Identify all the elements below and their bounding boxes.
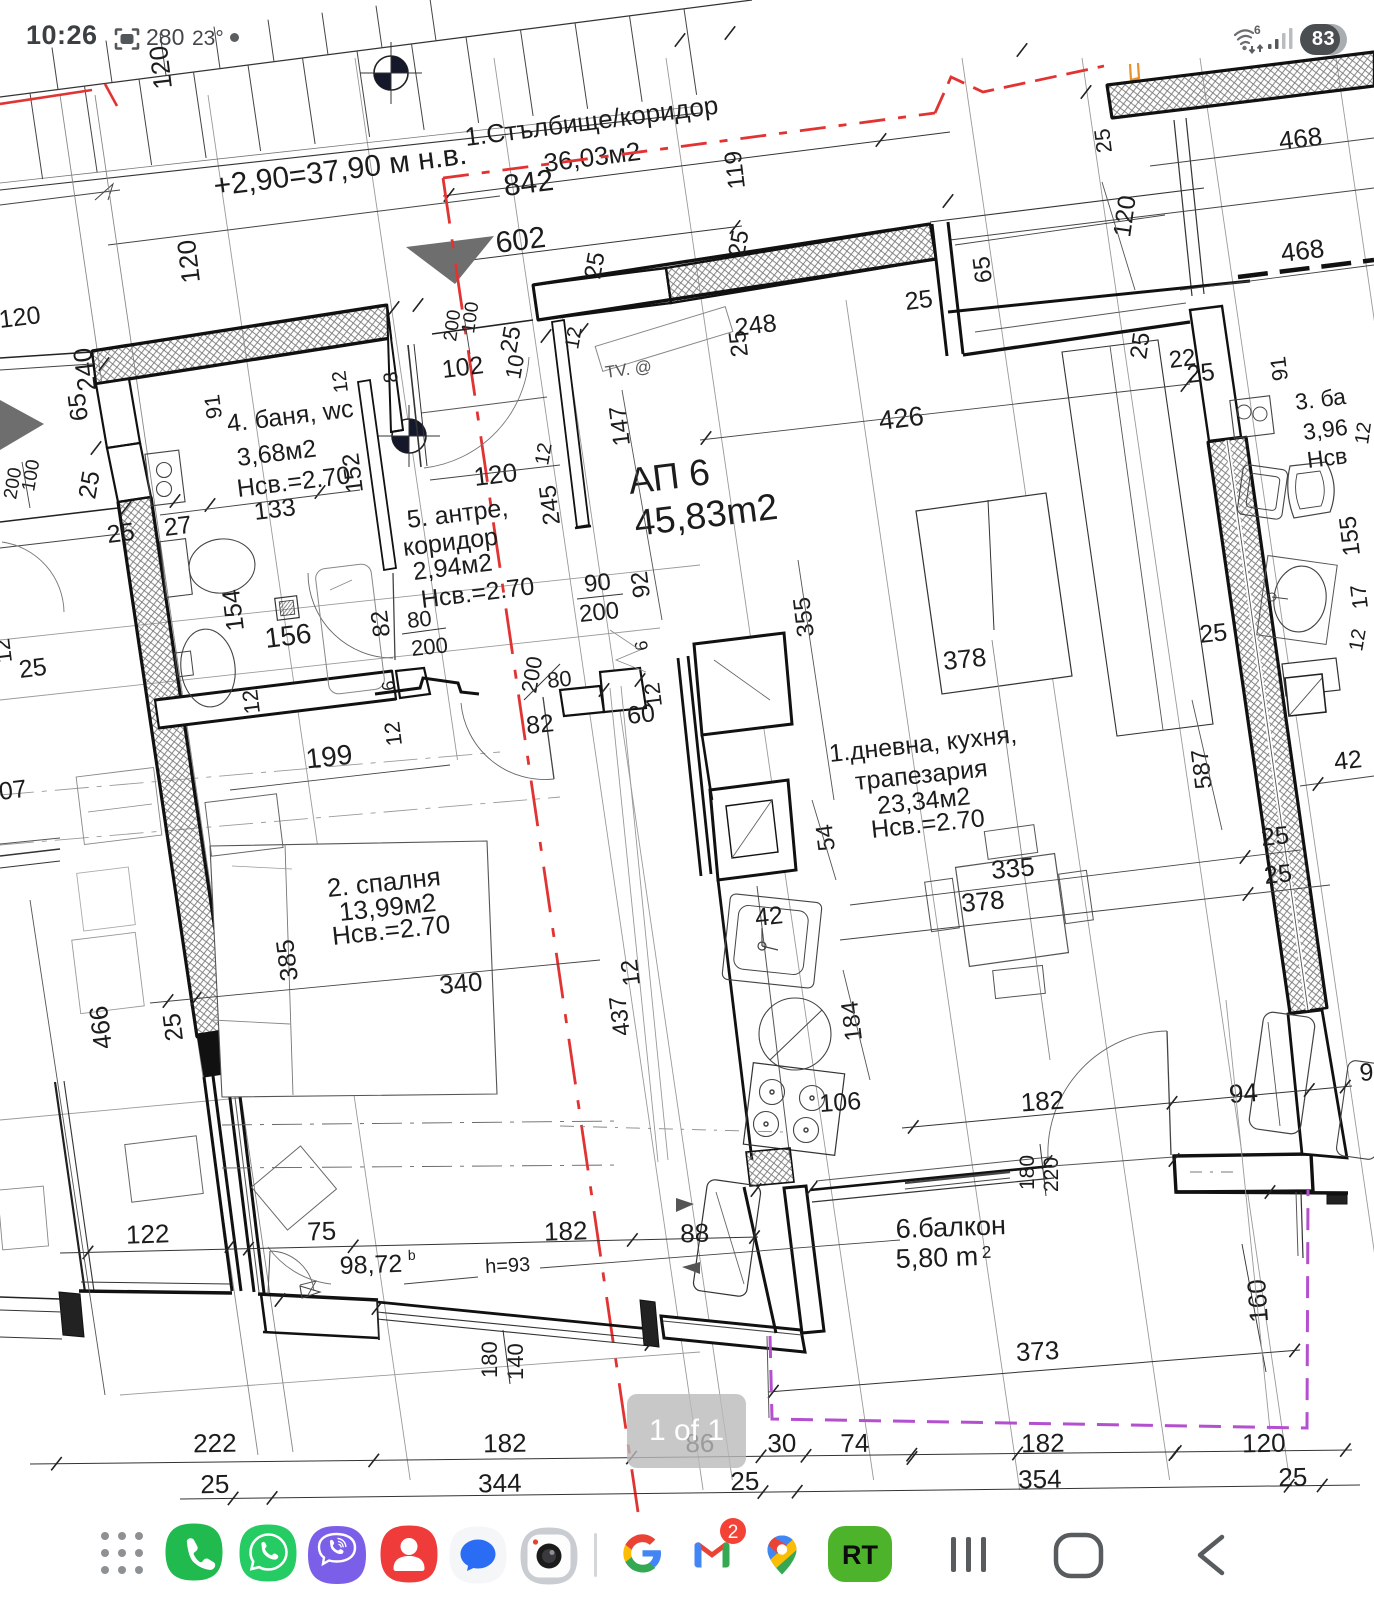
svg-text:25: 25	[1263, 859, 1294, 890]
svg-text:182: 182	[1020, 1085, 1065, 1118]
svg-text:12: 12	[1351, 421, 1374, 446]
svg-text:156: 156	[263, 617, 313, 653]
svg-text:25: 25	[495, 324, 526, 355]
svg-text:120: 120	[1242, 1428, 1286, 1459]
svg-text:120: 120	[171, 238, 206, 285]
svg-text:54: 54	[811, 823, 841, 853]
svg-text:82: 82	[525, 709, 556, 740]
svg-text:12: 12	[639, 681, 667, 708]
svg-text:25: 25	[1198, 618, 1229, 649]
svg-text:12: 12	[616, 958, 646, 988]
svg-text:200: 200	[0, 466, 26, 501]
svg-text:25: 25	[1089, 127, 1117, 154]
svg-text:Нсв: Нсв	[1305, 442, 1348, 473]
svg-text:102: 102	[440, 351, 485, 384]
svg-text:106: 106	[818, 1087, 862, 1118]
svg-text:42: 42	[754, 901, 785, 932]
svg-text:07: 07	[0, 775, 28, 806]
svg-text:36,03м2: 36,03м2	[542, 136, 642, 178]
svg-text:437: 437	[604, 995, 636, 1038]
svg-text:119: 119	[719, 149, 750, 190]
svg-text:65: 65	[63, 392, 94, 423]
svg-text:88: 88	[680, 1218, 710, 1249]
svg-text:25: 25	[158, 1012, 189, 1043]
svg-text:10: 10	[500, 352, 529, 380]
svg-text:120: 120	[143, 44, 178, 91]
svg-text:200: 200	[516, 654, 547, 695]
svg-text:200: 200	[410, 632, 449, 661]
svg-text:4. баня, wc: 4. баня, wc	[225, 395, 355, 438]
svg-text:25: 25	[1278, 1462, 1307, 1493]
svg-text:200: 200	[578, 597, 621, 628]
svg-text:385: 385	[271, 938, 304, 983]
svg-text:6: 6	[1254, 24, 1261, 37]
svg-text:5,80 m: 5,80 m	[895, 1241, 979, 1274]
svg-text:b: b	[408, 1247, 417, 1263]
svg-text:22: 22	[1167, 344, 1197, 374]
svg-text:25: 25	[579, 250, 610, 281]
svg-text:8: 8	[380, 370, 403, 384]
svg-text:378: 378	[960, 884, 1006, 918]
svg-text:3,96: 3,96	[1301, 414, 1349, 445]
svg-text:154: 154	[217, 588, 250, 633]
svg-text:12: 12	[531, 441, 557, 467]
svg-text:248: 248	[733, 309, 778, 342]
svg-text:12: 12	[1345, 627, 1371, 653]
svg-text:12: 12	[0, 637, 17, 664]
svg-text:RT: RT	[842, 1540, 878, 1570]
svg-text:25: 25	[730, 1466, 759, 1497]
svg-text:182: 182	[483, 1428, 527, 1459]
svg-text:12: 12	[328, 369, 353, 394]
svg-text:199: 199	[304, 739, 354, 775]
svg-text:98,72: 98,72	[339, 1250, 403, 1280]
svg-text:TV. @: TV. @	[604, 357, 653, 382]
svg-text:25: 25	[1125, 331, 1155, 361]
svg-text:152: 152	[337, 452, 369, 495]
svg-text:25: 25	[73, 469, 105, 501]
svg-text:344: 344	[478, 1468, 522, 1499]
svg-text:42: 42	[1333, 745, 1364, 776]
svg-text:155: 155	[1334, 515, 1366, 558]
svg-text:27: 27	[162, 511, 193, 542]
svg-text:182: 182	[543, 1215, 587, 1246]
svg-text:91: 91	[199, 393, 227, 420]
svg-text:378: 378	[941, 642, 987, 676]
svg-text:222: 222	[193, 1428, 237, 1459]
svg-text:354: 354	[1018, 1464, 1062, 1495]
svg-text:245: 245	[534, 484, 566, 527]
svg-text:468: 468	[1277, 121, 1324, 156]
svg-text:75: 75	[307, 1216, 337, 1247]
svg-text:25: 25	[903, 285, 934, 316]
svg-text:122: 122	[125, 1218, 169, 1249]
svg-text:200: 200	[440, 308, 465, 342]
svg-text:335: 335	[990, 851, 1036, 885]
svg-text:25: 25	[17, 653, 48, 684]
svg-text:17: 17	[1345, 583, 1373, 610]
svg-text:180: 180	[477, 1341, 502, 1378]
svg-text:468: 468	[1279, 233, 1326, 268]
svg-text:426: 426	[877, 401, 925, 436]
svg-text:h=93: h=93	[485, 1254, 531, 1278]
svg-text:25: 25	[105, 518, 136, 549]
svg-text:2: 2	[728, 1522, 739, 1543]
svg-text:587: 587	[1186, 748, 1218, 791]
svg-text:+2,90=37,90 м н.в.: +2,90=37,90 м н.в.	[212, 138, 469, 203]
svg-text:25: 25	[200, 1469, 229, 1500]
svg-text:82: 82	[366, 609, 396, 639]
svg-text:9: 9	[1359, 1058, 1374, 1087]
svg-text:74: 74	[840, 1428, 869, 1459]
svg-text:373: 373	[1015, 1335, 1060, 1367]
svg-text:92: 92	[626, 570, 656, 600]
svg-text:6.балкон: 6.балкон	[895, 1210, 1006, 1244]
svg-text:80: 80	[546, 666, 573, 693]
svg-text:120: 120	[1108, 194, 1142, 239]
svg-text:65: 65	[968, 255, 998, 285]
svg-text:160: 160	[1241, 1278, 1274, 1323]
svg-text:90: 90	[583, 568, 612, 598]
svg-text:3. ба: 3. ба	[1293, 383, 1347, 415]
svg-text:120: 120	[0, 301, 42, 334]
svg-text:466: 466	[83, 1004, 118, 1051]
svg-text:91: 91	[1265, 355, 1293, 382]
svg-text:25: 25	[1260, 821, 1291, 852]
svg-text:180: 180	[1016, 1155, 1039, 1190]
svg-text:12: 12	[379, 720, 407, 747]
svg-text:30: 30	[767, 1428, 796, 1459]
svg-text:2: 2	[981, 1243, 991, 1262]
svg-text:25: 25	[723, 228, 754, 259]
svg-text:182: 182	[1021, 1428, 1065, 1459]
svg-text:94: 94	[1228, 1077, 1259, 1109]
svg-text:12: 12	[237, 688, 265, 715]
svg-text:80: 80	[406, 606, 433, 633]
svg-text:602: 602	[494, 221, 548, 260]
